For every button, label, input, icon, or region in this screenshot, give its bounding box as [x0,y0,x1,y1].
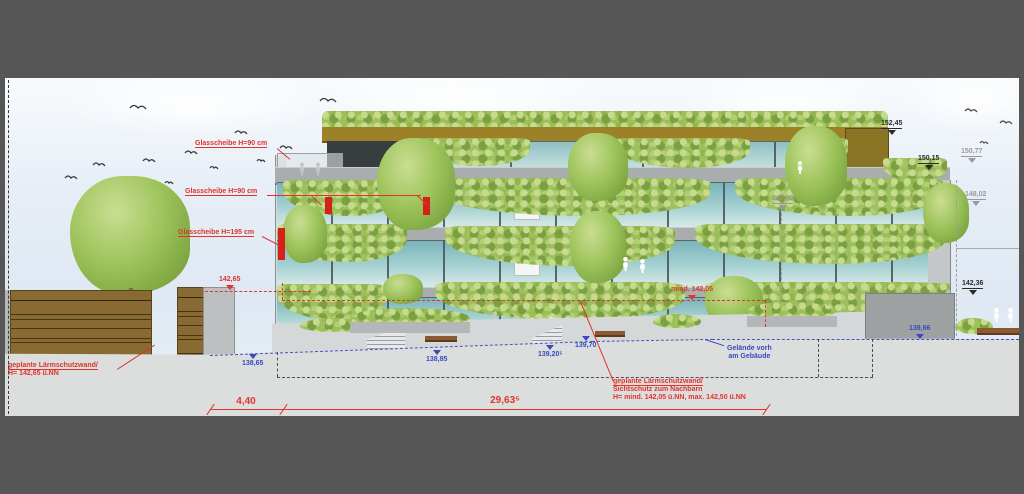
level-marker-min-142-05: mind. 142,05 [671,286,713,300]
glass-label-1: Glasscheibe H=90 cm [195,140,267,148]
level-text: 148,02 [965,191,986,200]
level-line-142-65 [205,291,311,292]
level-marker-150-15: 150,15 [918,155,939,170]
level-marker-142-36: 142,36 [962,280,983,295]
person-figure [991,300,1002,330]
projection-line [781,208,782,300]
level-text: 150,77 [961,148,982,157]
level-text: 138,65 [242,360,263,368]
glass-label-2: Glasscheibe H=90 cm [185,188,257,196]
person-figure [637,252,648,280]
level-triangle-icon [433,350,441,355]
level-text: mind. 142,05 [671,286,713,294]
glass-label-1-text: Glasscheibe H=90 cm [195,140,267,148]
roof-hedge [322,111,888,128]
glass-label-3-text: Glasscheibe H=195 cm [178,229,254,237]
underground-outline [872,339,873,377]
bush-planting [510,302,565,318]
bench [425,336,457,342]
level-line-142-05 [282,300,765,301]
level-triangle-icon [969,290,977,295]
tree [568,133,628,201]
level-triangle-icon [582,336,590,341]
noise-wall-note-left: geplante Lärmschutzwand/ H= 142,65 ü.NN [8,362,98,378]
noise-wall-note-left-line2: H= 142,65 ü.NN [8,370,98,378]
underground-outline [277,377,873,378]
level-text: 142,65 [219,276,240,284]
dimension-line [210,409,766,410]
person-figure [313,157,323,181]
noise-wall-note-left-line1: geplante Lärmschutzwand/ [8,362,98,370]
noise-wall-note-right-line3: H= mind. 142,05 ü.NN, max. 142,50 ü.NN [613,394,746,402]
tree [283,205,327,263]
projection-line [956,180,957,336]
terrain-note-line1: Gelände vorh [727,345,772,353]
bush-planting [653,314,701,328]
elevation-drawing: Glasscheibe H=90 cm Glasscheibe H=90 cm … [5,78,1019,416]
dimension-value-main: 29,63⁵ [467,395,543,406]
level-marker-138-65: 138,65 [242,354,263,368]
tree [923,183,969,243]
level-triangle-icon [916,334,924,339]
level-marker-147-60: 147,60 [772,195,793,210]
level-marker-139-70: 139,70 [575,336,596,350]
level-marker-142-65: 142,65 [219,276,240,290]
person-figure [1005,300,1016,330]
level-text: 138,85 [426,356,447,364]
leader-line [267,195,421,196]
tree [570,211,626,283]
level-triangle-icon [972,201,980,206]
level-marker-138-85: 138,85 [426,350,447,364]
person-figure [620,250,631,278]
level-triangle-icon [226,285,234,290]
level-triangle-icon [688,295,696,300]
person-figure [297,157,307,181]
level-triangle-icon [249,354,257,359]
planter-box [350,322,470,333]
glass-label-3: Glasscheibe H=195 cm [178,229,254,237]
level-text: 152,45 [881,120,902,129]
concrete-wall [203,287,235,362]
level-text: 139,66 [909,325,930,333]
level-text: 139,20⁵ [538,351,563,359]
level-marker-139-66: 139,66 [909,325,930,339]
drawing-boundary-line [8,80,9,414]
glass-pane-marker [325,197,332,214]
noise-wall-strip [177,287,205,356]
underground-outline [818,339,819,377]
noise-wall-note-right-line2: Sichtschutz zum Nachbarn [613,386,746,394]
viewer-background: Glasscheibe H=90 cm Glasscheibe H=90 cm … [0,0,1024,494]
level-text: 139,70 [575,342,596,350]
terrain-line [712,339,1019,340]
level-triangle-icon [925,165,933,170]
person-figure [795,155,805,180]
level-triangle-icon [546,345,554,350]
level-line-142-05-end [765,300,766,327]
underground-outline [277,352,278,377]
level-triangle-icon [968,158,976,163]
tree [377,138,455,230]
level-marker-139-20: 139,20⁵ [538,345,563,359]
level-text: 147,60 [772,195,793,204]
level-line-142-05-end [282,283,283,300]
level-text: 150,15 [918,155,939,164]
large-tree-left [70,176,190,294]
terrain-note-line2: am Gebäude [727,353,772,361]
level-marker-152-45: 152,45 [881,120,902,135]
noise-wall-brown [10,290,152,356]
terrain-note: Gelände vorh am Gebäude [727,345,772,361]
level-triangle-icon [779,205,787,210]
level-marker-148-02: 148,02 [965,191,986,206]
glass-pane-marker [423,197,430,215]
noise-wall-note-right: geplante Lärmschutzwand/ Sichtschutz zum… [613,378,746,402]
property-line [956,248,1019,249]
noise-wall-note-right-line1: geplante Lärmschutzwand/ [613,378,703,386]
dimension-value-left: 4,40 [224,396,268,407]
glass-label-2-text: Glasscheibe H=90 cm [185,188,257,196]
level-marker-150-77: 150,77 [961,148,982,163]
planter-box [747,316,837,327]
level-text: 142,36 [962,280,983,289]
bench [595,331,625,337]
level-triangle-icon [888,130,896,135]
